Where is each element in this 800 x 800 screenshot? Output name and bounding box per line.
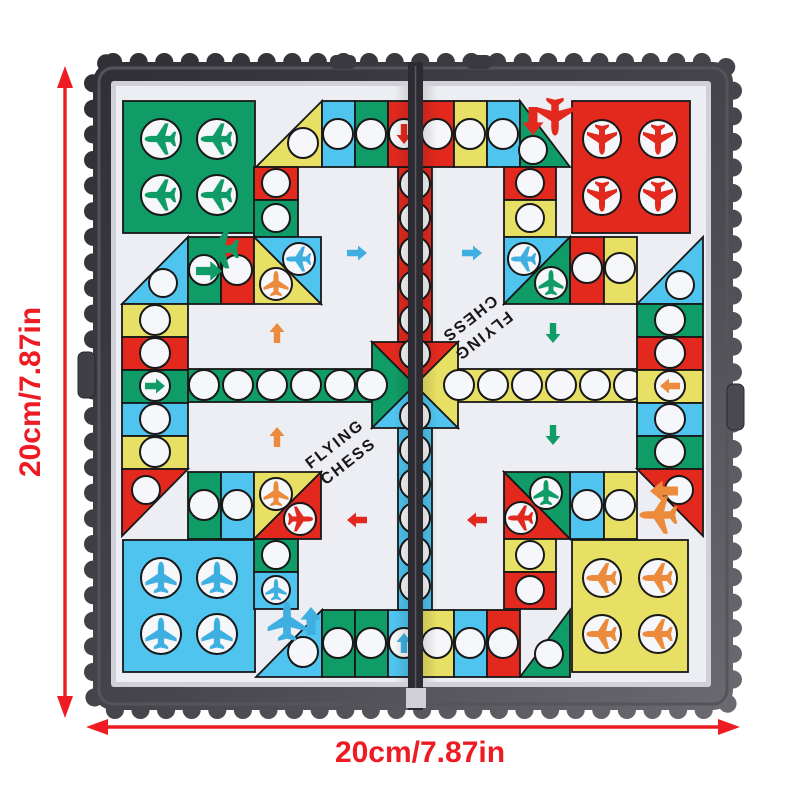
fold-tab-right [466, 55, 492, 69]
hangar-square [123, 540, 255, 672]
arrow-right-icon [718, 719, 740, 735]
dimension-label-left: 20cm/7.87in [14, 307, 47, 477]
hangar-square [572, 101, 690, 233]
hangar-red [572, 101, 690, 233]
arrow-left-icon [86, 719, 108, 735]
dimension-label-bottom: 20cm/7.87in [335, 736, 505, 769]
hangar-square [572, 540, 688, 672]
left-hinge-tab [78, 352, 95, 398]
hangar-yellow [572, 540, 688, 672]
hangar-blue [123, 540, 255, 672]
hangar-green [123, 101, 255, 233]
hangar-square [123, 101, 255, 233]
dimension-height: 20cm/7.87in [14, 66, 73, 718]
arrow-down-icon [57, 696, 73, 718]
arrow-up-icon [57, 66, 73, 88]
dimension-width: 20cm/7.87in [86, 719, 740, 769]
seam-bottom-gap [406, 688, 426, 708]
right-hinge-tab [727, 384, 744, 430]
screenshot-canvas: FLYING CHESS FLYING CHESS 20cm/7.87in 20… [0, 0, 800, 800]
fold-seam [394, 62, 438, 710]
product-photo: FLYING CHESS FLYING CHESS 20cm/7.87in 20… [0, 0, 800, 800]
fold-tab-left [330, 55, 356, 69]
